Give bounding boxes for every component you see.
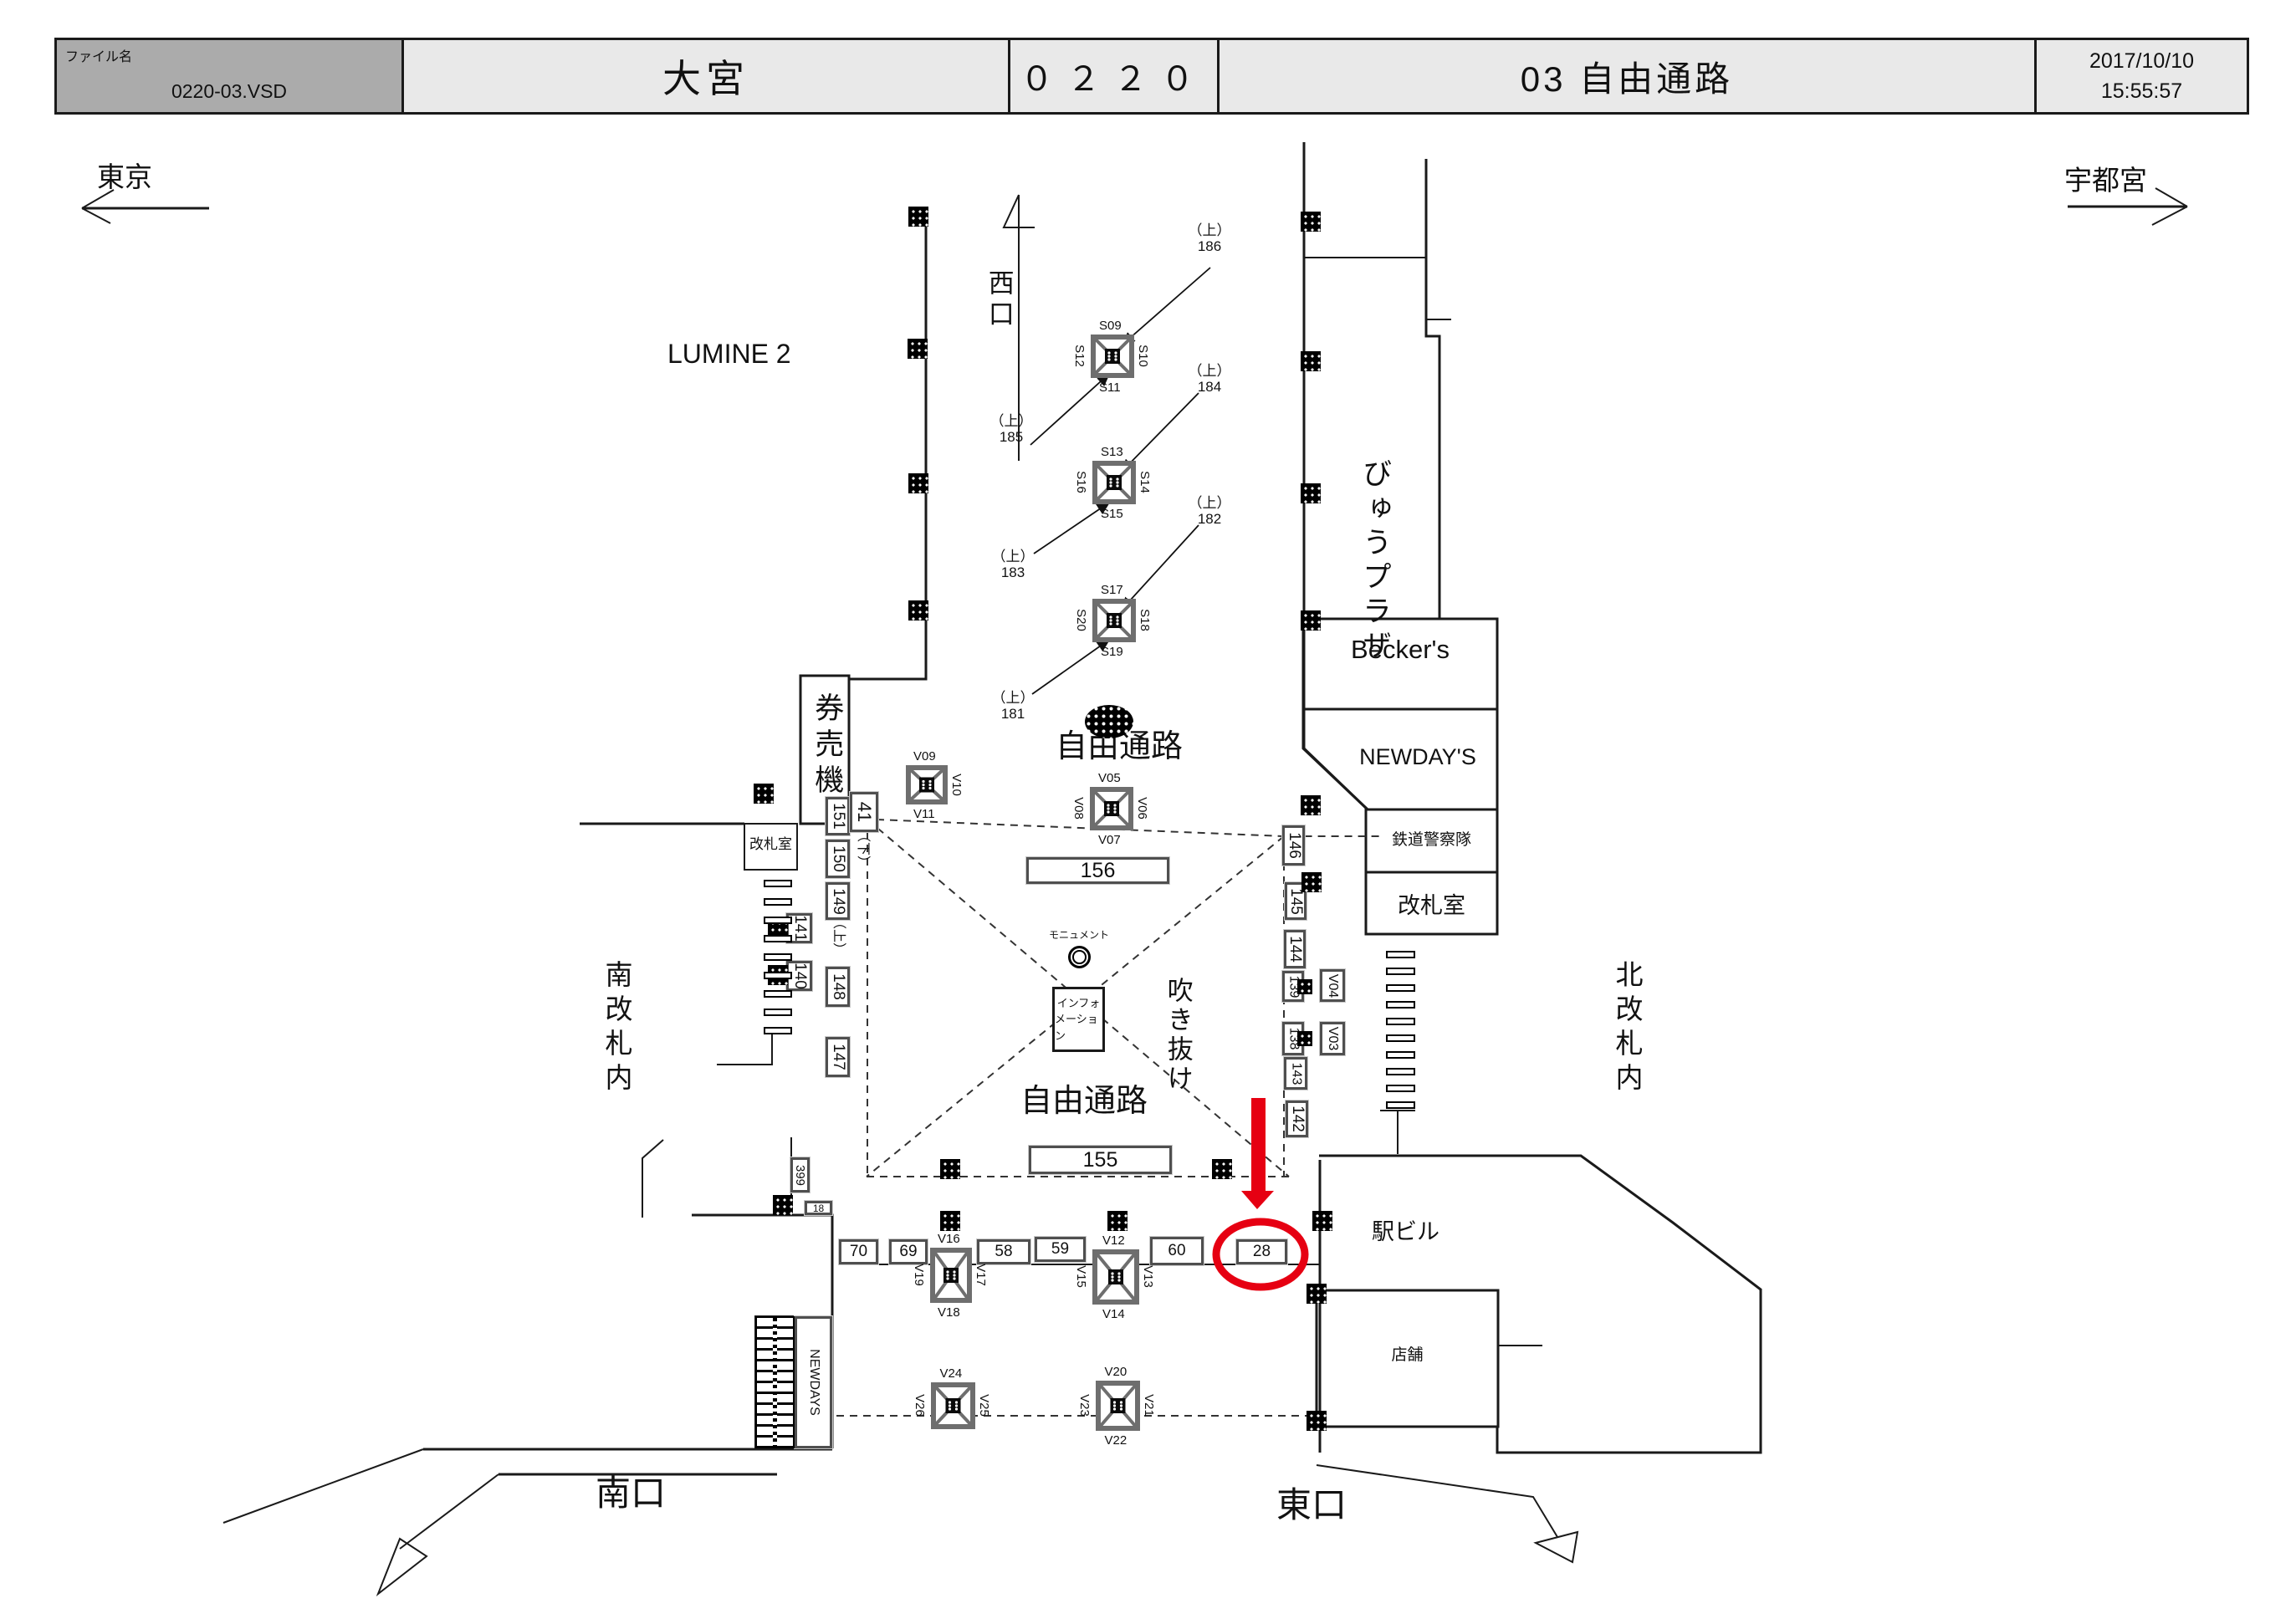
south-exit-diagonal [400,1474,499,1549]
number-box-155: 155 [1029,1146,1172,1174]
label-tokyo: 東京 [97,162,152,193]
leader-line-183 [1034,503,1109,554]
date-value: 2017/10/10 [2089,46,2194,76]
label-ekibiru: 駅ビル [1372,1219,1439,1244]
south-ticket-gate-bar [764,953,792,961]
sign-face-label-S15: S15 [1101,507,1123,521]
sign-face-label-S11: S11 [1099,380,1121,395]
label-railway-police: 鉄道警察隊 [1366,831,1497,849]
label-minami-kaisatsu-nai: 南改札内 [601,960,632,1097]
sign-marker-V24 [931,1382,975,1429]
sign-face-label-V09: V09 [913,749,936,763]
pillar-icon [1307,1411,1327,1431]
sign-marker-icon [1096,1381,1140,1431]
stairs-column [757,1318,773,1447]
number-box-V03: V03 [1320,1022,1345,1055]
sign-marker-icon [906,765,948,804]
number-box-59: 59 [1035,1237,1086,1262]
number-box-28: 28 [1236,1239,1287,1264]
number-box-147: 147 [826,1037,850,1077]
sign-marker-V12 [1092,1249,1139,1305]
south-ticket-gate-bar [764,1009,792,1016]
sign-face-label-V25: V25 [977,1394,991,1417]
sign-face-label-S16: S16 [1074,471,1088,493]
file-name-label: ファイル名 [65,45,132,65]
pillar-icon [1312,1211,1332,1231]
sign-face-label-V11: V11 [913,807,935,821]
highlight-arrow-shaft [1251,1098,1266,1191]
number-box-label: 70 [850,1243,867,1261]
station-name: 大宮 [404,40,1010,112]
leader-line-182 [1122,525,1199,610]
number-box-41: 41 [850,792,878,832]
north-ticket-gate-bar [1386,951,1415,958]
pillar-icon [1301,872,1322,892]
number-box-label: 58 [995,1243,1012,1261]
time-value: 15:55:57 [2101,76,2182,106]
pillar-icon [908,207,928,227]
information-booth-label: メーション [1055,1011,1102,1044]
number-box-label: V03 [1325,1027,1340,1050]
number-box-label: 399 [793,1164,807,1185]
sign-marker-V20 [1096,1381,1140,1431]
north-ticket-gate-bar [1386,1034,1415,1042]
label-beckers: Becker's [1303,636,1497,665]
monument-icon [1068,946,1091,968]
south-ticket-gate-bar [764,990,792,998]
sign-face-label-S09: S09 [1099,319,1122,333]
number-box-label: 156 [1081,859,1116,883]
north-ticket-gate-bar [1386,1018,1415,1025]
number-box-label: 143 [1288,1062,1303,1085]
number-box-label: NEWDAYS [806,1349,821,1416]
pillar-icon [940,1211,960,1231]
floor-note-182: （上） 182 [1182,495,1237,527]
sign-marker-icon [1091,335,1134,378]
sign-marker-S13 [1092,461,1136,504]
north-ticket-gate-bar [1386,1085,1415,1092]
label-utsunomiya: 宇都宮 [2064,166,2147,197]
sign-face-label-S13: S13 [1101,445,1123,459]
sign-face-label-S20: S20 [1074,609,1088,631]
sign-face-label-V06: V06 [1135,797,1149,820]
sign-face-label-V14: V14 [1102,1307,1125,1321]
floor-note-186: （上） 186 [1182,222,1237,254]
number-box-label: 141 [790,915,809,942]
number-box-60: 60 [1150,1237,1204,1265]
sign-marker-icon [1092,461,1136,504]
north-ticket-gate-bar [1386,1051,1415,1059]
number-box-label: 144 [1286,936,1304,963]
number-box-label: 155 [1083,1148,1118,1172]
sign-face-label-S10: S10 [1136,345,1150,367]
label-fukinuke: 吹き抜け [1163,977,1192,1094]
pillar-icon [1301,212,1321,232]
south-ticket-gate-bar [764,935,792,942]
sign-face-label-S18: S18 [1138,609,1152,631]
sign-face-label-V22: V22 [1105,1433,1128,1448]
sign-marker-icon [930,1248,972,1303]
number-box-label: 60 [1168,1242,1185,1260]
sign-marker-S09 [1091,335,1134,378]
number-box-142: 142 [1286,1101,1308,1137]
wall-east-outer [1426,159,1439,619]
label-shita: （下） [846,831,878,866]
label-monument: モニュメント [1049,930,1109,941]
floor-note-184: （上） 184 [1182,363,1237,395]
number-box-399: 399 [790,1157,810,1192]
label-ue: （上） [822,918,854,953]
sign-face-label-V26: V26 [913,1394,927,1417]
label-jiyu-tsuro-lower: 自由通路 [1020,1084,1148,1120]
number-box-156: 156 [1026,857,1169,884]
number-box-label: 59 [1051,1240,1069,1259]
stairs-icon [755,1316,795,1448]
pillar-icon [1301,795,1321,815]
number-box-label: 41 [853,802,875,822]
sign-marker-V09 [906,765,948,804]
floor-note-185: （上） 185 [984,413,1039,445]
number-box-144: 144 [1284,930,1306,968]
wall-station-building [1319,1156,1761,1453]
sign-marker-S17 [1092,599,1136,642]
sign-marker-V05 [1090,787,1133,830]
floor-note-183: （上） 183 [985,549,1041,580]
sign-face-label-S19: S19 [1101,645,1123,659]
number-box-69: 69 [889,1239,928,1264]
number-box-18: 18 [805,1201,832,1215]
label-nishiguchi: 西口 [984,269,1013,331]
label-view-plaza: びゅうプラザ [1358,458,1391,664]
sign-face-label-V08: V08 [1071,797,1086,820]
label-kaisatsushitsu-north: 改札室 [1366,893,1497,918]
file-name-cell: ファイル名 0220-03.VSD [57,40,404,112]
leader-line-184 [1122,393,1199,472]
leader-line-181 [1032,640,1109,694]
pillar-icon [1212,1159,1232,1179]
hatched-pillar-icon [1085,705,1133,738]
number-box-151: 151 [826,797,850,835]
label-kaisatsushitsu-south: 改札室 [744,836,797,852]
number-box-label: 148 [829,973,847,1000]
station-code: ０２２０ [1010,40,1220,112]
north-ticket-gate-bar [1386,1068,1415,1075]
sign-face-label-S17: S17 [1101,583,1123,597]
leader-line-186 [1122,268,1210,345]
number-box-146: 146 [1282,825,1305,866]
sign-face-label-S14: S14 [1138,471,1152,493]
station-floor-plan: ファイル名 0220-03.VSD 大宮 ０２２０ 03 自由通路 2017/1… [0,0,2296,1624]
number-box-label: 146 [1285,832,1303,859]
pillar-icon [1301,610,1321,631]
number-box-150: 150 [826,840,850,878]
number-box-NEWDAYS: NEWDAYS [795,1316,832,1448]
label-kita-kaisatsu-nai: 北改札内 [1611,960,1642,1097]
pillar-icon [908,473,928,493]
tokyo-arrowhead-icon [82,190,114,223]
north-ticket-gate-bar [1386,968,1415,975]
pillar-icon [908,339,928,359]
number-box-label: V04 [1325,973,1340,997]
south-ticket-gate-bar [764,898,792,906]
number-box-V04: V04 [1320,969,1345,1002]
number-box-148: 148 [826,967,850,1007]
number-box-58: 58 [977,1239,1030,1264]
number-box-label: 151 [829,803,847,830]
north-ticket-gate-bar [1386,1001,1415,1009]
sign-face-label-V07: V07 [1098,833,1121,847]
datetime-cell: 2017/10/10 15:55:57 [2037,40,2247,112]
title-block: ファイル名 0220-03.VSD 大宮 ０２２０ 03 自由通路 2017/1… [54,38,2249,115]
floor-note-181: （上） 181 [985,690,1041,722]
number-box-label: 28 [1253,1243,1271,1261]
sign-face-label-V05: V05 [1098,771,1121,785]
label-newdays-store: NEWDAY'S [1338,744,1497,769]
pillar-icon [1297,979,1312,994]
pillar-icon [1307,1284,1327,1304]
pillar-icon [908,600,928,620]
wall-sw-2 [642,1140,663,1218]
number-box-label: 150 [829,845,847,872]
label-kenbaiki: 券売機 [811,692,843,800]
sign-face-label-V17: V17 [974,1264,988,1286]
leader-line-185 [1030,374,1109,445]
sign-face-label-V23: V23 [1077,1394,1092,1417]
east-exit-line [1317,1465,1557,1537]
wall-south-diagonal [223,1449,423,1523]
number-box-label: 147 [829,1044,847,1070]
number-box-label: 140 [790,963,809,989]
highlight-arrow-icon [1241,1191,1274,1209]
north-ticket-gate-bar [1386,984,1415,992]
information-booth: インフォメーション [1052,987,1105,1052]
sign-face-label-V10: V10 [949,774,964,796]
number-box-label: 142 [1288,1106,1307,1132]
sign-face-label-V21: V21 [1142,1394,1156,1417]
sheet-title: 03 自由通路 [1220,40,2037,112]
south-ticket-gate-bar [764,880,792,887]
pillar-icon [1107,1211,1128,1231]
pillar-icon [754,784,774,804]
pillar-icon [773,1195,793,1215]
sign-face-label-V12: V12 [1102,1233,1125,1248]
south-ticket-gate-bar [764,917,792,924]
sign-face-label-V19: V19 [912,1264,926,1286]
sign-marker-icon [1092,1249,1139,1305]
label-higashiguchi: 東口 [1276,1485,1347,1524]
sign-marker-icon [1092,599,1136,642]
number-box-label: 69 [899,1243,917,1261]
south-ticket-gate-bar [764,972,792,979]
number-box-label: 149 [829,888,847,915]
wall-north-gate-tail [1380,1111,1415,1154]
pillar-icon [940,1159,960,1179]
sign-face-label-V18: V18 [938,1305,960,1320]
stairs-column [777,1318,793,1447]
information-booth-label: インフォ [1057,995,1101,1012]
south-ticket-gate-bar [764,1027,792,1034]
number-box-149: 149 [826,882,850,920]
number-box-143: 143 [1284,1057,1307,1090]
number-box-label: 18 [813,1203,824,1214]
sign-marker-V16 [930,1248,972,1303]
north-ticket-gate-bar [1386,1101,1415,1109]
sign-marker-icon [1090,787,1133,830]
sign-marker-icon [931,1382,975,1429]
sign-face-label-V13: V13 [1141,1265,1155,1288]
label-minamiguchi: 南口 [596,1473,666,1513]
sign-face-label-V24: V24 [940,1366,963,1381]
sign-face-label-V15: V15 [1074,1265,1088,1288]
pillar-icon [1297,1031,1312,1046]
number-box-70: 70 [839,1239,878,1264]
sign-face-label-V20: V20 [1105,1365,1128,1379]
label-tenpo: 店舗 [1317,1346,1498,1364]
sign-face-label-V16: V16 [938,1232,960,1246]
monument-inner-ring [1072,950,1087,964]
pillar-icon [1301,483,1321,503]
label-lumine2: LUMINE 2 [667,340,791,370]
sign-face-label-S12: S12 [1072,345,1087,367]
pillar-icon [1301,351,1321,371]
file-name-value: 0220-03.VSD [57,80,401,103]
